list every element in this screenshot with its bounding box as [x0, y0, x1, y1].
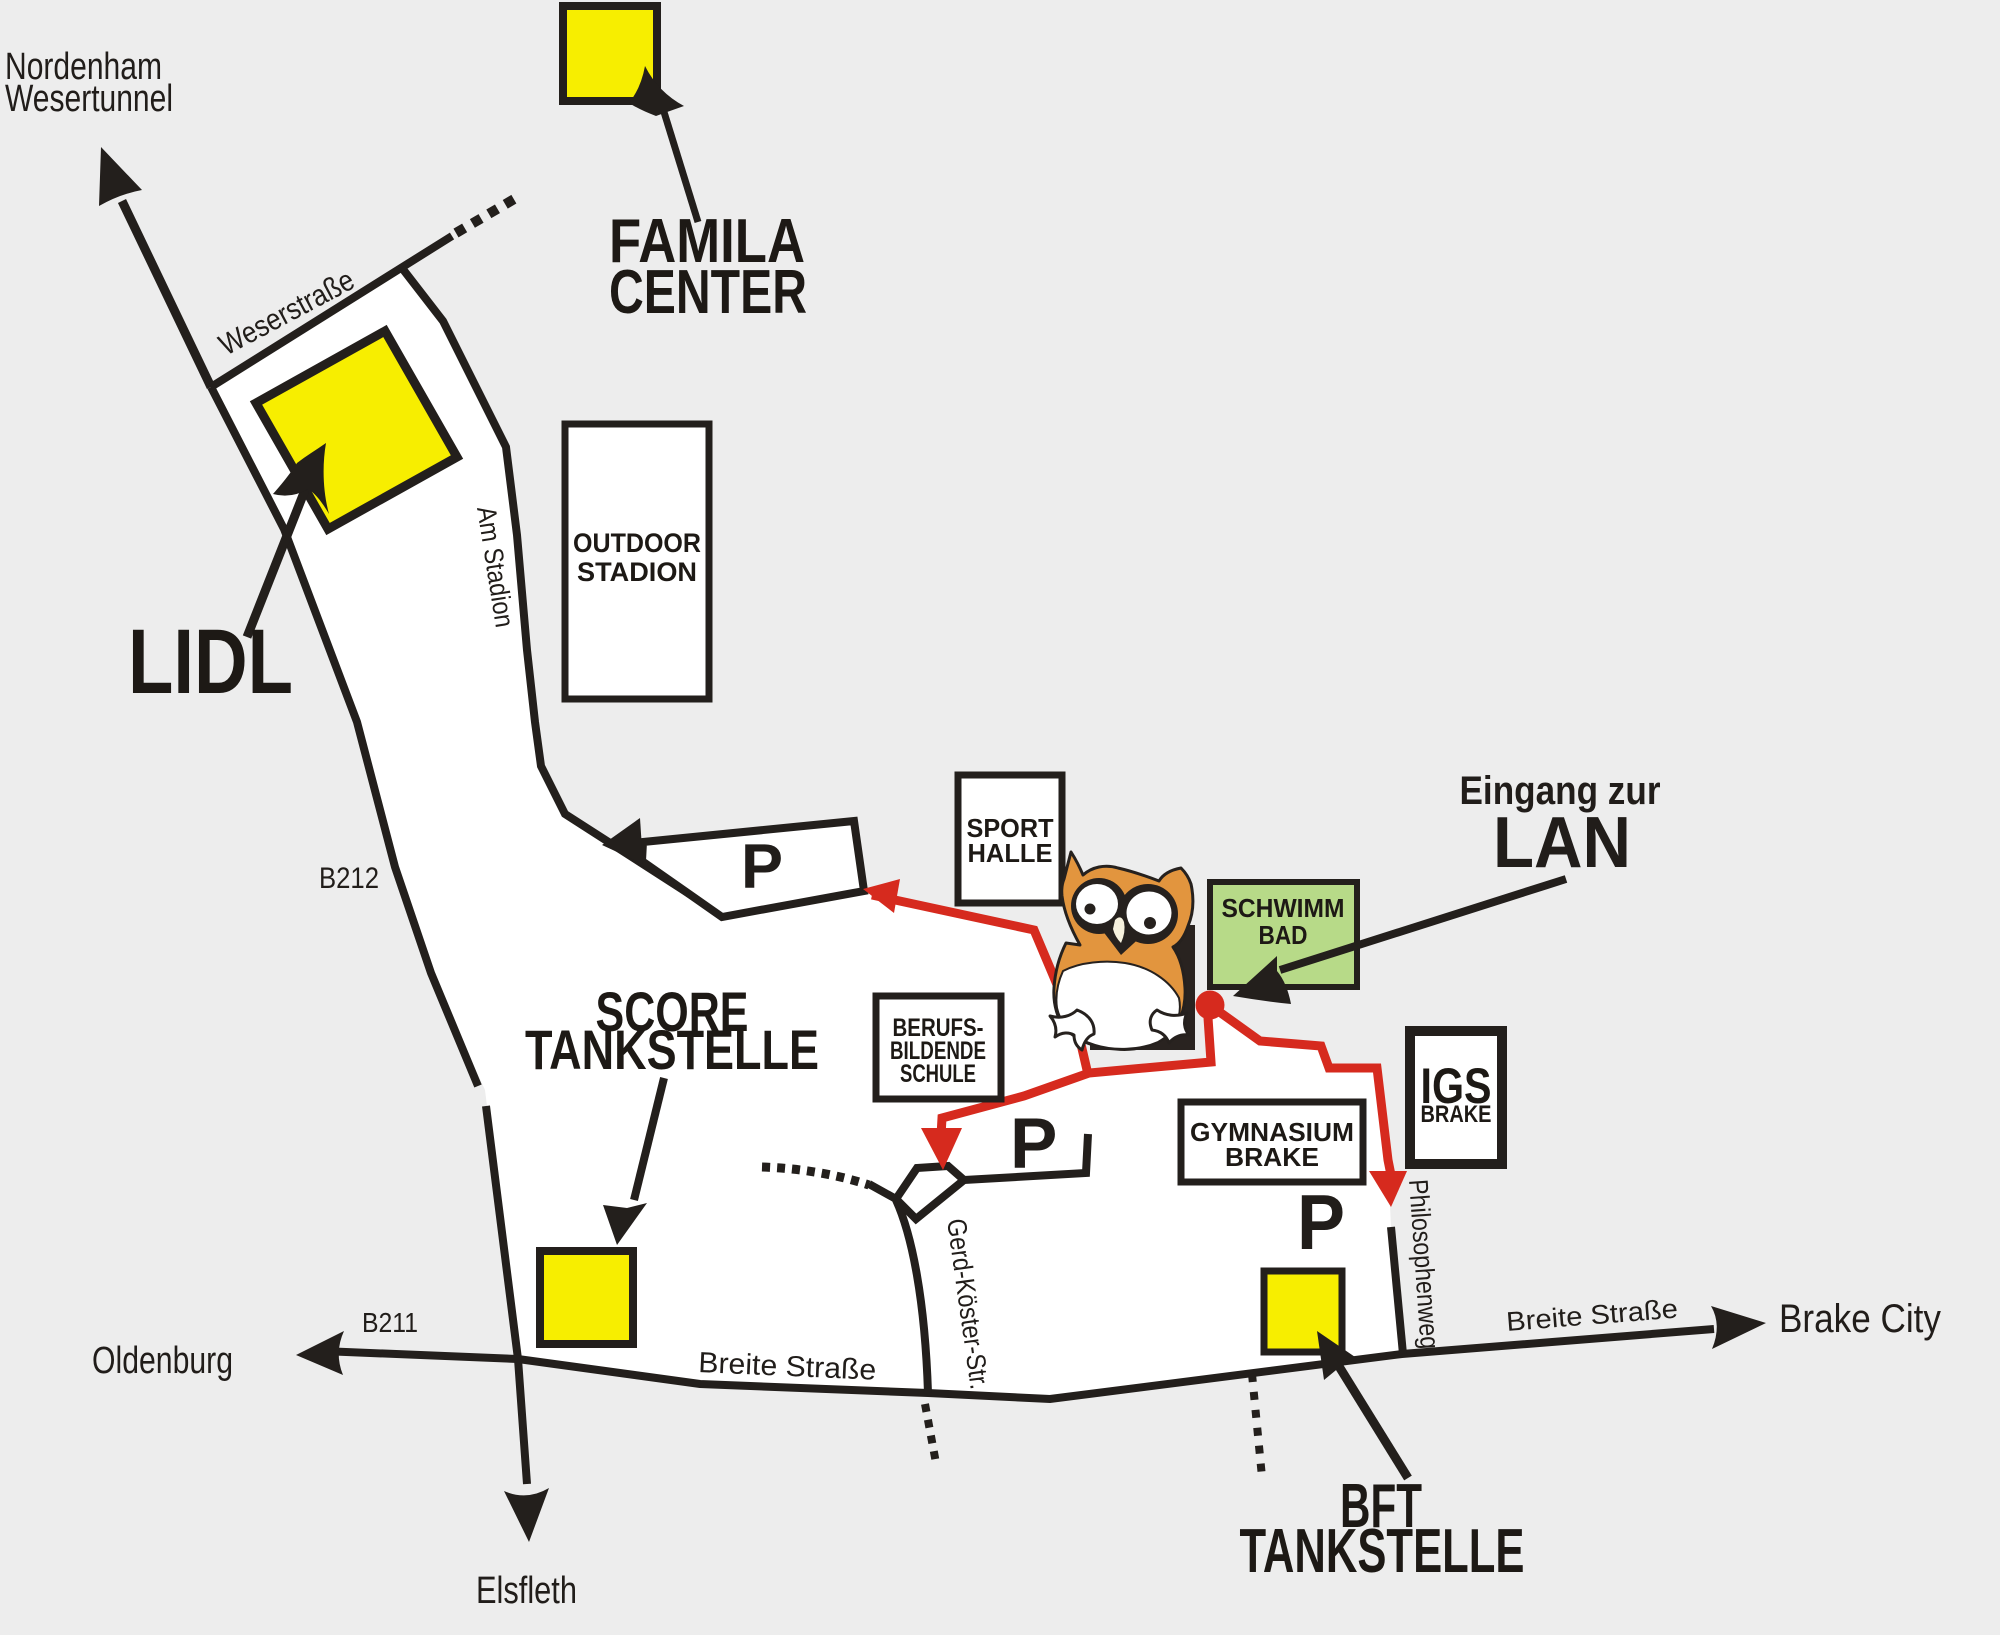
svg-text:LIDL: LIDL	[128, 611, 293, 713]
svg-text:Brake City: Brake City	[1779, 1297, 1941, 1341]
svg-text:TANKSTELLE: TANKSTELLE	[525, 1018, 819, 1081]
svg-text:BRAKE: BRAKE	[1421, 1101, 1492, 1128]
svg-text:P: P	[1297, 1178, 1345, 1266]
svg-text:P: P	[741, 832, 783, 902]
svg-text:HALLE: HALLE	[968, 838, 1053, 868]
svg-text:Wesertunnel: Wesertunnel	[5, 78, 173, 120]
svg-text:CENTER: CENTER	[609, 258, 807, 327]
svg-text:TANKSTELLE: TANKSTELLE	[1240, 1517, 1525, 1586]
svg-text:P: P	[1010, 1105, 1057, 1184]
svg-text:OUTDOOR: OUTDOOR	[573, 528, 701, 558]
svg-text:B211: B211	[362, 1307, 418, 1338]
svg-text:SCHWIMM: SCHWIMM	[1222, 893, 1345, 923]
svg-text:BRAKE: BRAKE	[1225, 1142, 1319, 1172]
svg-text:BAD: BAD	[1259, 920, 1308, 950]
svg-text:STADION: STADION	[577, 557, 697, 587]
svg-text:Oldenburg: Oldenburg	[92, 1340, 233, 1382]
svg-text:Elsfleth: Elsfleth	[476, 1570, 577, 1612]
svg-text:LAN: LAN	[1493, 803, 1631, 883]
svg-text:B212: B212	[319, 862, 379, 895]
svg-text:SCHULE: SCHULE	[900, 1060, 976, 1088]
